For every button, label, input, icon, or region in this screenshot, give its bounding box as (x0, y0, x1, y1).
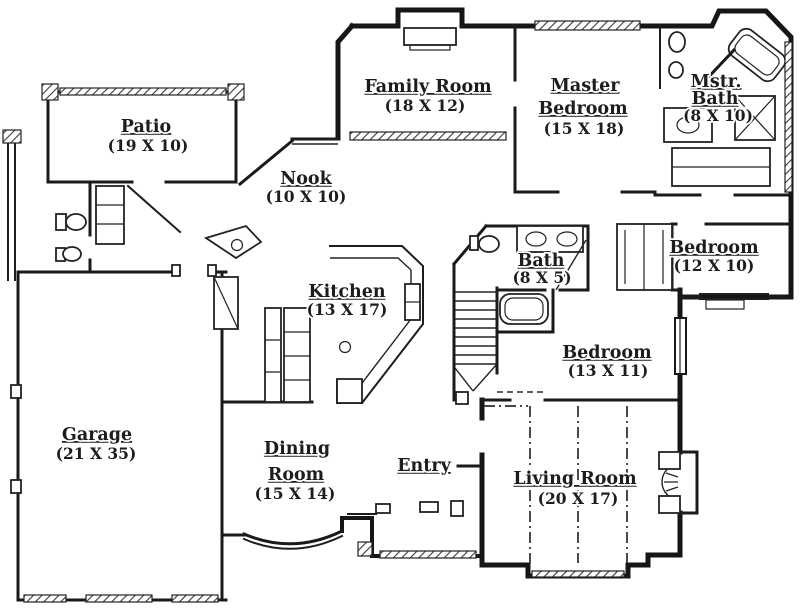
master-window-band (535, 21, 640, 30)
label-master-bedroom-name2: Bedroom (538, 99, 628, 119)
entry-column (451, 501, 463, 516)
right-wall-hatch (785, 42, 792, 192)
kitchen-counter-inner (330, 258, 411, 391)
label-bedroom-center-dims: (13 X 11) (568, 361, 649, 380)
laundry-room (56, 182, 216, 276)
door-jamb (420, 502, 438, 512)
label-kitchen-dims: (13 X 17) (307, 300, 388, 319)
label-patio-dims: (19 X 10) (108, 136, 189, 155)
garage-wall-hatch (172, 595, 218, 602)
label-bedroom-right-name: Bedroom (669, 238, 759, 258)
garage-structure (24, 595, 218, 602)
wall-post (11, 480, 21, 493)
label-dining-name2: Room (268, 465, 325, 485)
label-bedroom-right-dims: (12 X 10) (674, 256, 755, 275)
laundry-cabinet (96, 186, 124, 244)
bidet (669, 62, 683, 78)
label-living-name: Living Room (513, 469, 637, 489)
side-fence (8, 140, 15, 280)
garage-wall-hatch (86, 595, 152, 602)
bath-vanity (517, 226, 583, 252)
label-bedroom-center-name: Bedroom (562, 343, 652, 363)
stair-bottom (455, 364, 497, 391)
label-family-room-dims: (18 X 12) (385, 96, 466, 115)
toilet-tank (470, 236, 478, 250)
newel-post (456, 392, 468, 404)
wall-post (11, 385, 21, 398)
label-bath-dims: (8 X 5) (512, 268, 571, 287)
label-patio-name: Patio (121, 117, 171, 137)
door-jamb (376, 504, 390, 513)
label-master-bath-dims: (8 X 10) (683, 106, 753, 125)
pantry-cabinet (265, 308, 281, 402)
label-master-bedroom-name1: Master (550, 76, 620, 96)
pantry-cabinet (284, 308, 310, 402)
kitchen-range (337, 379, 362, 403)
fireplace-cabinet (659, 452, 680, 469)
label-kitchen-name: Kitchen (308, 282, 385, 302)
toilet (66, 214, 86, 230)
fireplace-firebox (404, 28, 456, 45)
label-entry-name: Entry (397, 456, 451, 476)
nook-planter (206, 226, 261, 258)
hearth-ticks (664, 473, 678, 491)
fireplace-cabinet (659, 496, 680, 513)
toilet (669, 32, 685, 52)
wall-family-left (338, 26, 352, 138)
toilet-tank (56, 214, 66, 230)
label-dining-dims: (15 X 14) (255, 484, 336, 503)
sink (63, 247, 81, 261)
porch-edge-hatch (380, 551, 476, 558)
fence-cap (3, 130, 21, 143)
floor-plan-canvas: Patio (19 X 10) Family Room (18 X 12) Ma… (0, 0, 800, 616)
patio-top-window (60, 88, 226, 95)
family-room-window-band (350, 132, 506, 140)
label-living-dims: (20 X 17) (538, 489, 619, 508)
label-garage-dims: (21 X 35) (56, 444, 137, 463)
window-seat (706, 300, 744, 309)
garage-wall-hatch (24, 595, 66, 602)
patio-corner-post (228, 84, 244, 100)
staircase (455, 292, 497, 404)
label-nook-name: Nook (280, 169, 332, 189)
porch-column (358, 542, 372, 556)
patio-corner-post (42, 84, 58, 100)
toilet (479, 236, 499, 252)
bay-window-band (532, 571, 624, 577)
fireplace-bump (680, 452, 697, 513)
wall-laundry-diagonal (128, 186, 180, 232)
label-master-bedroom-dims: (15 X 18) (544, 119, 625, 138)
kitchen-fixture (340, 342, 351, 353)
label-family-room-name: Family Room (364, 77, 492, 97)
label-garage-name: Garage (62, 425, 132, 445)
label-dining-name1: Dining (264, 439, 330, 459)
floor-plan-page: Patio (19 X 10) Family Room (18 X 12) Ma… (0, 0, 800, 616)
label-nook-dims: (10 X 10) (266, 187, 347, 206)
door-jamb (208, 265, 216, 276)
stair-treads (455, 292, 497, 364)
door-jamb (172, 265, 180, 276)
